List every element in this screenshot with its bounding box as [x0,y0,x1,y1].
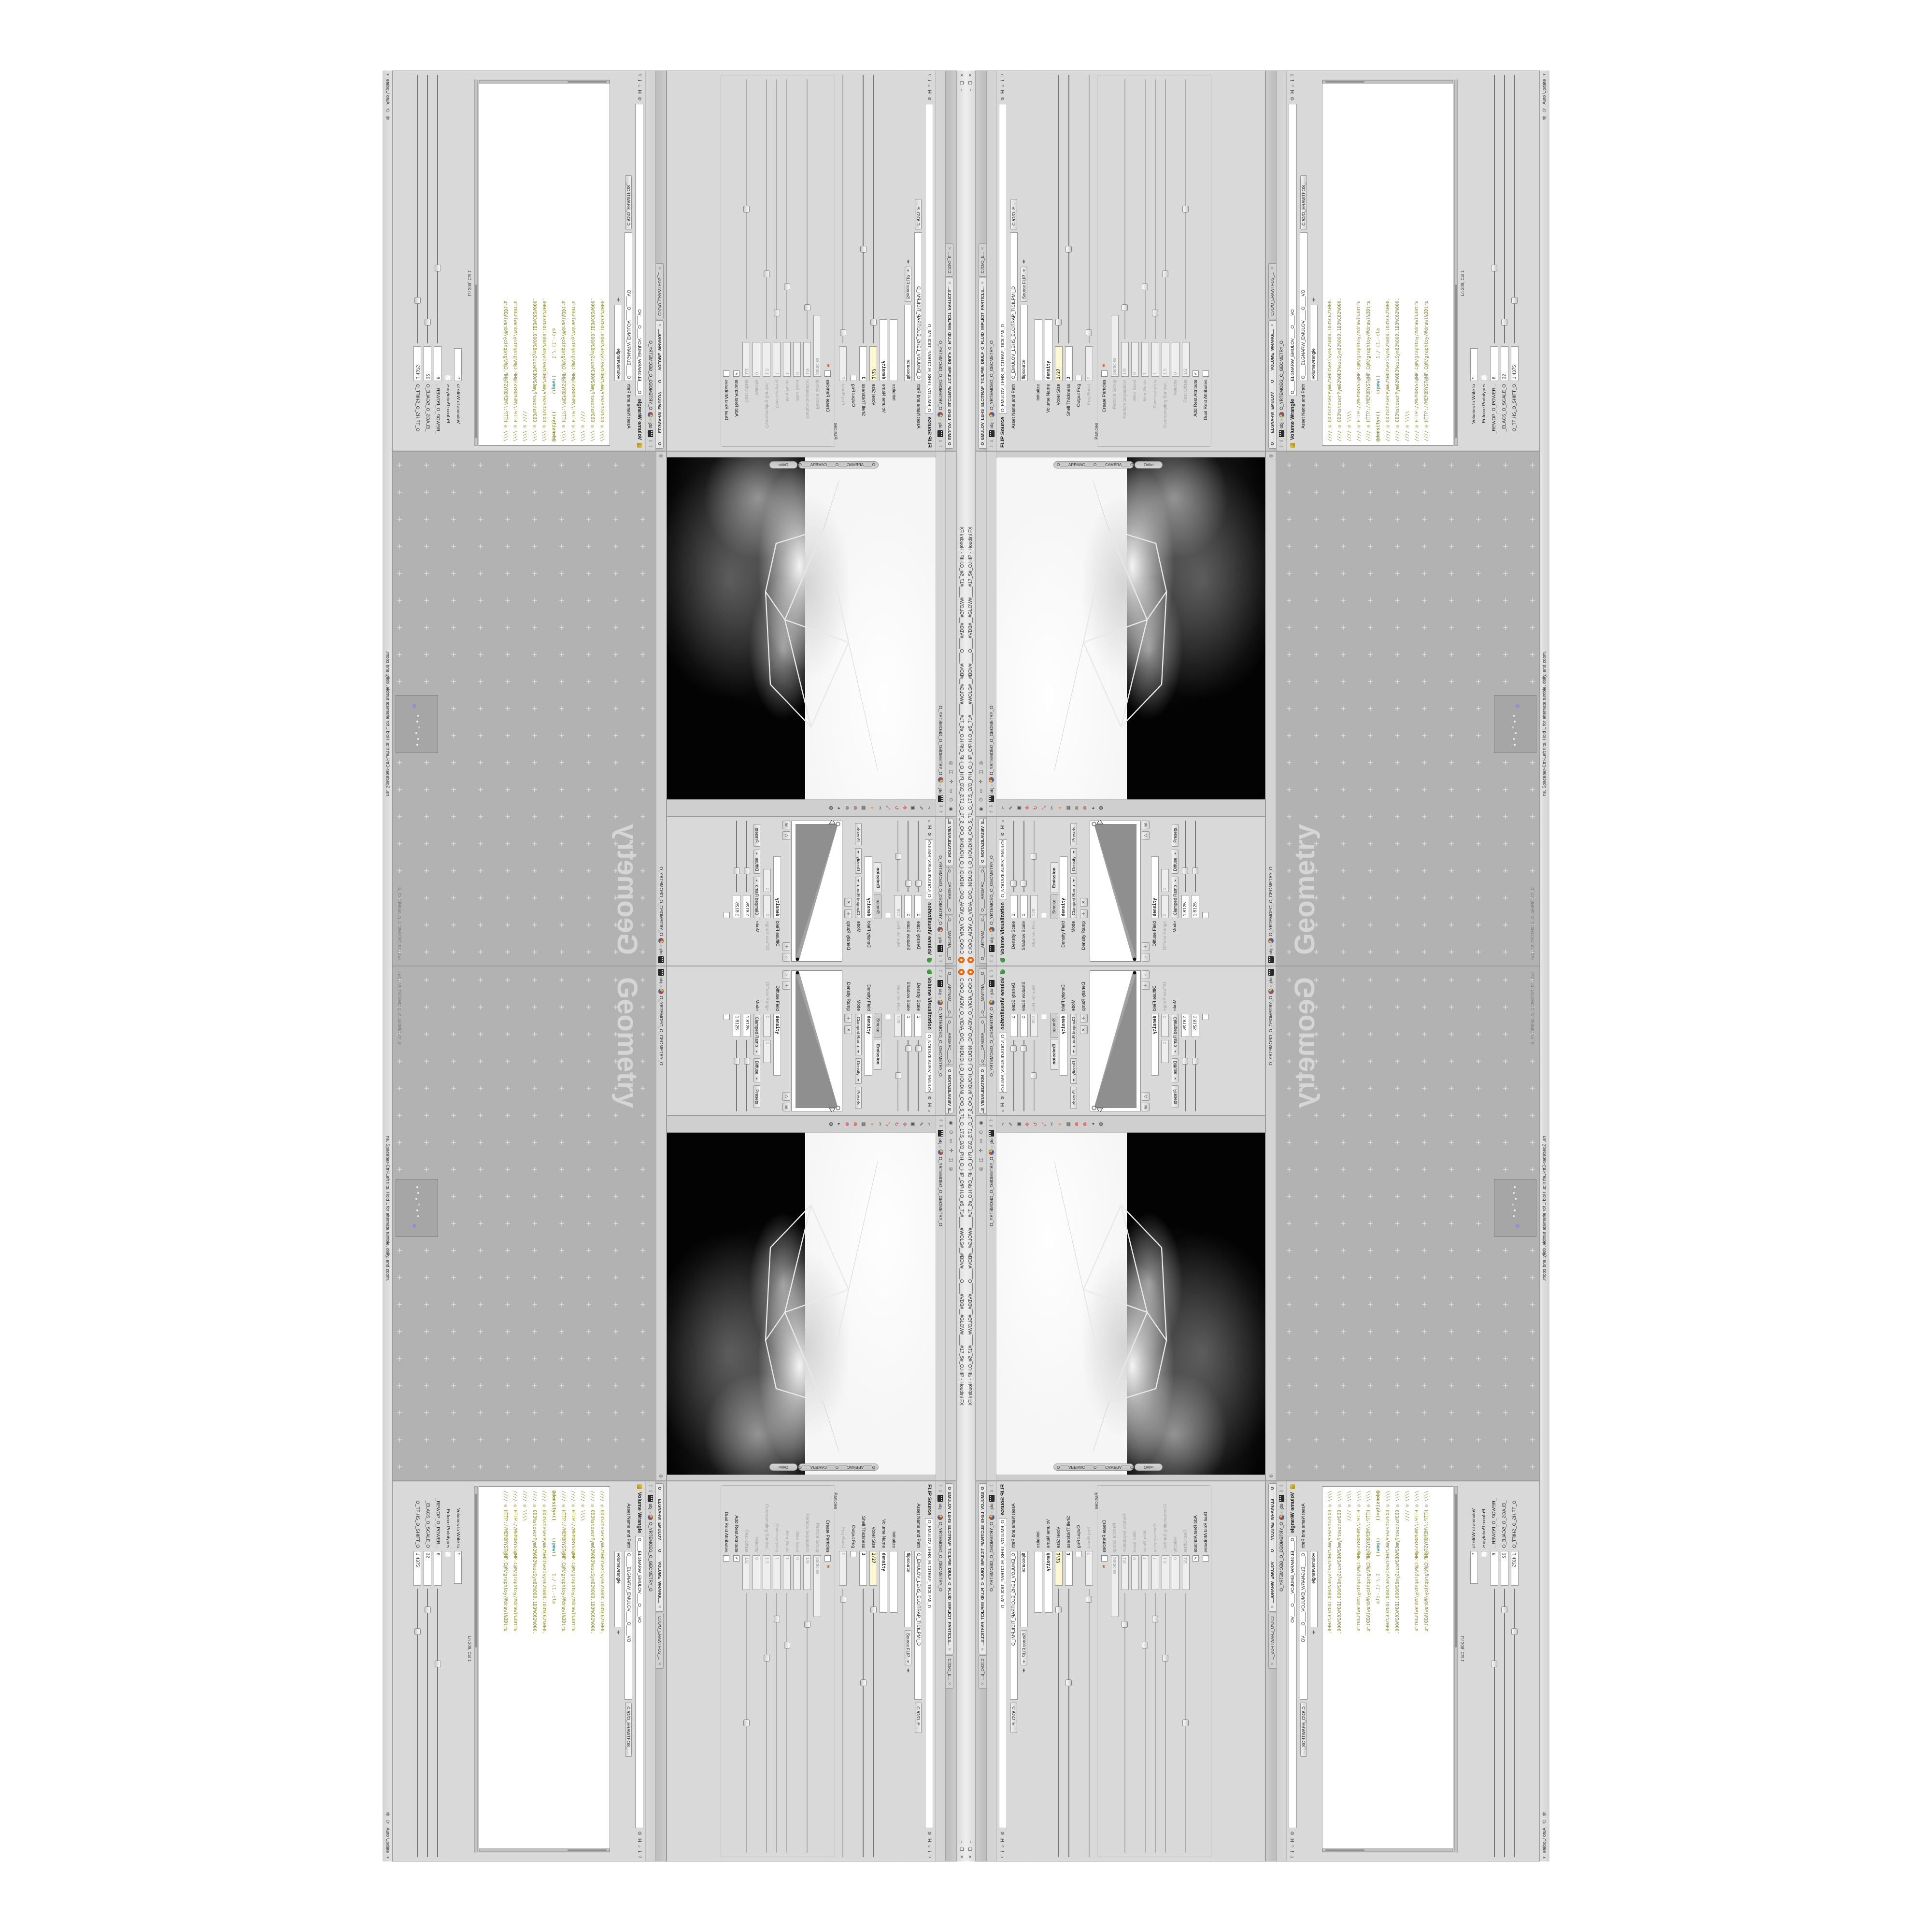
network-canvas[interactable]: Geometry CubeSphereO_EREHPS_EBUC_O_CUBE_… [1276,452,1539,966]
source-flip-dropdown[interactable]: Source FLIP [905,1630,912,1665]
slider-knob[interactable] [1511,1628,1518,1635]
ramp-interp-icon[interactable]: △ [1142,831,1150,840]
param-field[interactable]: 0 [764,1014,771,1037]
param-field[interactable]: 0 [794,342,801,377]
viewport-tool-icon[interactable]: ▦ [861,804,866,812]
viewport-tool-icon[interactable]: ✎ [1009,1121,1014,1128]
spinner-icon[interactable]: ◂▸ [1311,1630,1316,1634]
nav-forward-icon[interactable]: ⇩ [938,1124,943,1128]
vex-code-editor[interactable]: //// ◎ 0D3%steserPym62%0D3%eziSym62%000.… [1322,80,1453,446]
maximize-button[interactable]: ❐ [959,1847,964,1851]
slider-knob[interactable] [1031,853,1037,860]
pane-tab[interactable]: C:/O/O_ERAWTFOS_... ✕ [656,1613,664,1669]
param-checkbox[interactable] [850,375,856,381]
mode-dropdown[interactable]: Clamped Ramp [855,877,862,918]
asset-name-field[interactable]: O_EMULOV_LEHS_ELCITRAP_TICILPMI_D [1010,232,1018,381]
gear-icon[interactable]: ⚙ [637,1831,642,1835]
help-icon[interactable]: ? [927,1855,932,1858]
param-field[interactable]: 1 [1141,342,1149,377]
slider-knob[interactable] [734,1058,740,1065]
param-checkbox[interactable] [723,370,729,377]
path-root[interactable]: obj [1279,1504,1284,1509]
node-name-field[interactable]: flipsource [1020,305,1028,381]
viewport-tool-icon[interactable]: ❂ [828,1121,833,1128]
viewport-tool-icon[interactable]: ❂ [1099,804,1104,812]
pane-tab[interactable]: C:/O/O_ERAWTFOS_... ✕ [656,263,664,319]
param-slider[interactable] [1491,1589,1497,1857]
ramp-add-button[interactable]: ✛ [1080,1014,1088,1023]
gear-icon[interactable]: ⚙ [1000,1095,1006,1100]
search-icon[interactable]: ⌕ [1290,1845,1295,1848]
mode-dropdown[interactable]: Clamped Ramp [1070,877,1077,918]
ramp-add-button[interactable]: ✛ [1080,909,1088,918]
param-field[interactable]: 1.5 [1162,342,1169,377]
nav-back-icon[interactable]: ⇧ [938,810,943,813]
param-checkbox[interactable] [1202,1014,1208,1020]
presets2-button[interactable]: Presets [1172,824,1179,847]
param-field[interactable]: 128 [1030,895,1038,918]
tab-close-icon[interactable]: ✕ [947,1648,952,1651]
param-slider[interactable] [1142,79,1148,339]
pane-tab[interactable]: O____AREMAC____O... ✕ [979,867,986,915]
asset-path-button[interactable]: C:/O/O_E... [915,199,922,229]
ramp-source-dropdown[interactable]: Density [1070,848,1077,874]
path-root[interactable]: obj [938,1138,943,1144]
path-root[interactable]: obj [989,788,994,794]
slider-knob[interactable] [784,284,790,290]
viewport-render[interactable]: O____AREMAC____O____CAMERA____O Ortho [667,456,936,799]
path-root[interactable]: obj [1279,423,1284,428]
asset-path-button[interactable]: C:/O/O_ERAWTFOS_... [1300,1703,1307,1757]
param-slider[interactable] [734,1040,740,1111]
param-checkbox[interactable] [1076,375,1082,381]
pane-tab[interactable]: O____ELGNARW_EMULOV____O____VOLUME_WRANG… [1268,1483,1276,1612]
tab-close-icon[interactable]: ✕ [980,1648,985,1651]
source-flip-dropdown[interactable]: Source FLIP [905,267,912,302]
param-field[interactable]: 1/27 [870,346,878,381]
maximize-button[interactable]: ❐ [968,1847,973,1851]
search-icon[interactable]: ⌕ [1290,84,1295,87]
viewport-tool-icon[interactable]: ✎ [918,804,923,812]
viewport-tool-icon[interactable]: ✂ [877,804,882,812]
info-icon[interactable]: ℹ [927,1851,932,1853]
param-field[interactable]: 1.8125 [743,1014,751,1037]
path-geo[interactable]: O_YRTEMOEG_O_GEOMETRY_O [1279,341,1284,410]
slider-knob[interactable] [1152,1616,1158,1622]
viewport-tool-icon[interactable]: ⋒ [852,804,858,812]
gear-icon[interactable]: ⚙ [1290,1831,1295,1835]
nav-forward-icon[interactable]: ⇩ [1279,1490,1284,1493]
search-icon[interactable]: ⌕ [637,84,642,87]
path-geo[interactable]: O_YRTEMOEG_O_GEOMETRY_O [938,341,943,410]
tab-emission[interactable]: Emission [874,862,882,893]
nav-forward-icon[interactable]: ⇩ [989,439,994,443]
param-field[interactable]: 0 [839,346,847,381]
param-slider[interactable] [840,75,846,343]
ramp-zoom-icon[interactable]: ⌕ [782,970,790,979]
viewport-tool-icon[interactable]: ✎ [1009,804,1014,812]
param-checkbox[interactable] [1202,912,1208,918]
param-field[interactable]: 128 [1030,1014,1038,1037]
asset-path-button[interactable]: C:/O/O_E... [1010,199,1017,229]
param-field[interactable]: 1/2 [1182,1555,1190,1590]
ramp-source-dropdown[interactable]: Density [855,1058,862,1084]
param-slider[interactable] [1192,821,1198,892]
pane-tab[interactable]: O_EMULOV_LEHS_ELCITRAP_TICILPMI_DIULF_O_… [946,1483,953,1654]
asset-name-field[interactable]: O_EMULOV_LEHS_ELCITRAP_TICILPMI_D [1010,1551,1018,1700]
close-button[interactable]: ✕ [959,1855,964,1859]
param-checkbox[interactable] [1076,1551,1082,1557]
slider-knob[interactable] [1182,1058,1188,1065]
param-slider[interactable] [840,1589,846,1857]
pane-tab[interactable]: C:/O/O_ERAWTFOS_... ✕ [1268,263,1276,319]
param-field[interactable] [890,319,898,381]
render-flag-icon[interactable]: ⚑ [825,364,830,368]
gear-icon[interactable]: ⚙ [637,97,642,101]
pane-tab[interactable]: O_EMULOV_LEHS_ELCITRAP_TICILPMI_DIULF_O_… [946,278,953,449]
viewport-stowbar[interactable] [667,1475,936,1480]
viewport-tool-icon[interactable]: ✛ [979,1147,984,1154]
tab-close-icon[interactable]: ✕ [980,281,985,284]
viewport-tool-icon[interactable]: ◫ [948,1156,953,1164]
wrangle-name-field[interactable]: O____ELGNARW_EMULOV____O____VO [636,1536,644,1828]
param-slider[interactable] [764,1593,770,1853]
pane-tab[interactable]: O____ARTNAM____O... ✕ [979,968,986,1016]
network-canvas[interactable]: Geometry CubeSphereO_EREHPS_EBUC_O_CUBE_… [393,966,656,1480]
viewport-stowbar[interactable] [667,452,936,457]
param-field[interactable]: 32 [1501,1551,1508,1586]
param-field[interactable]: 0 [794,1555,801,1590]
help-houdini-icon[interactable]: H [1000,825,1006,829]
param-slider[interactable] [905,1040,911,1111]
slider-knob[interactable] [915,1045,922,1052]
param-field[interactable]: particles [1111,1555,1119,1617]
viz-name-field[interactable]: O_NOITAZILAUSIV_EMULOV_O_VO [925,839,934,899]
param-slider[interactable] [1065,1589,1072,1857]
ramp-zoom-icon[interactable]: ⌕ [782,953,790,962]
gear-icon[interactable]: ⚙ [1000,832,1006,837]
viewport-tool-icon[interactable]: ➢ [1000,804,1006,812]
param-field[interactable]: 3 [1065,1551,1073,1586]
slider-knob[interactable] [1142,1642,1148,1648]
camera-pill[interactable]: O____AREMAC____O____CAMERA____O [798,461,879,469]
maximize-button[interactable]: ❐ [968,81,973,85]
param-field[interactable]: 1 [1141,1555,1149,1590]
slider-knob[interactable] [414,297,421,304]
param-field[interactable]: 1.8125 [1192,1014,1199,1037]
search-icon[interactable]: ⌕ [1000,1845,1006,1848]
node-name-field[interactable]: flipsource [1020,1551,1028,1627]
slider-knob[interactable] [804,1621,810,1628]
slider-knob[interactable] [1065,1679,1072,1686]
viewport-tool-icon[interactable]: ▦ [1066,804,1071,812]
param-checkbox[interactable] [824,1555,831,1562]
render-flag-icon[interactable]: ⚑ [825,1564,830,1568]
nav-back-icon[interactable]: ⇧ [989,1119,994,1122]
close-button[interactable]: ✕ [959,73,964,77]
param-field[interactable] [1035,1551,1042,1613]
slider-knob[interactable] [744,867,750,874]
flip-name-field[interactable]: O_EMULOV_LEHS_ELCITRAP_TICILPMI_D [999,1518,1007,1828]
maximize-button[interactable]: ❐ [959,81,964,85]
slider-knob[interactable] [1162,1655,1168,1662]
viewport-tool-icon[interactable]: ⤡ [1041,804,1047,812]
diffuse-dropdown[interactable]: Diffuse [754,850,761,874]
path-root[interactable]: obj [1268,978,1273,983]
help-houdini-icon[interactable]: H [1000,1838,1006,1842]
presets2-button[interactable]: Presets [754,824,761,847]
param-checkbox[interactable] [850,1551,856,1557]
path-root[interactable]: obj [659,978,664,983]
search-icon[interactable]: ⌕ [927,1109,932,1112]
param-slider[interactable] [870,75,877,343]
param-field[interactable]: 1/9 [804,342,811,377]
network-minimap[interactable] [396,1179,438,1237]
param-field[interactable]: 0 [764,895,771,918]
param-field[interactable]: 1/9 [1121,1555,1129,1590]
param-slider[interactable] [804,1593,810,1853]
ramp-delete-button[interactable]: ✕ [1080,898,1088,907]
viewport-render[interactable]: O____AREMAC____O____CAMERA____O Ortho [996,456,1265,799]
param-field-2[interactable]: 1 [764,869,771,892]
viewport-tool-icon[interactable]: ⋒ [844,804,850,812]
viewport-tool-icon[interactable]: ▸ [836,1121,841,1128]
window-titlebar[interactable]: C:/O/O_AIDIV_O_VIDIA_O/O_INIDUOH_O_HOUDI… [966,966,976,1861]
viewport-tool-icon[interactable]: ✥ [902,1121,907,1128]
param-slider[interactable] [1182,1593,1189,1853]
search-icon[interactable]: ⌕ [927,84,932,87]
viewport-tool-icon[interactable]: ▣ [1017,804,1022,812]
param-slider[interactable] [1010,1040,1017,1111]
gear-icon[interactable]: ⚙ [927,832,932,837]
search-icon[interactable]: ⌕ [637,1845,642,1848]
asset-path-button[interactable]: C:/O/O_E... [1010,1703,1017,1733]
slider-knob[interactable] [870,319,877,326]
viewport-tool-icon[interactable]: ◉ [948,1119,953,1127]
viewport-tool-icon[interactable]: ▸ [1091,1121,1096,1128]
ramp-source-dropdown[interactable]: Density [1070,1058,1077,1084]
param-slider[interactable] [774,1593,780,1853]
pane-tab[interactable]: O____AREMAC____O... ✕ [946,1017,953,1065]
param-field[interactable]: 1/27 [1055,1551,1063,1586]
param-field[interactable]: 3 [860,1551,867,1586]
param-slider[interactable] [1152,1593,1158,1853]
ramp-add2-icon[interactable]: ✛ [1142,981,1150,990]
param-field[interactable]: 1.5 [763,342,771,377]
camera-pill[interactable]: O____AREMAC____O____CAMERA____O [1053,461,1134,469]
diffuse-dropdown[interactable]: Diffuse [754,1058,761,1083]
viewport-render[interactable]: O____AREMAC____O____CAMERA____O Ortho [996,1133,1265,1476]
param-field[interactable] [890,1551,898,1613]
ramp-grid-icon[interactable]: ⊞ [782,1103,790,1111]
param-slider[interactable] [1182,79,1189,339]
viewport-tool-icon[interactable]: ✳ [869,1121,874,1128]
viewport-tool-icon[interactable]: ⋒ [1074,804,1080,812]
param-checkbox[interactable]: ✓ [733,370,739,377]
spinner-icon[interactable]: ◂▸ [1021,1668,1026,1673]
tab-smoke[interactable]: Smoke [1050,1013,1058,1038]
tab-close-icon[interactable]: ✕ [980,247,985,250]
search-icon[interactable]: ⌕ [1000,84,1006,87]
code-vscrollbar[interactable] [1322,80,1453,84]
asset-name-field[interactable]: O_EMULOV_LEHS_ELCITRAP_TICILPMI_D [915,232,923,381]
nav-back-icon[interactable]: ⇧ [1279,1484,1284,1488]
viz-name-field[interactable]: O_NOITAZILAUSIV_EMULOV_O_VO [999,1033,1007,1093]
path-root[interactable]: obj [989,1138,994,1144]
pane-tab[interactable]: O____ELGNARW_EMULOV____O____VOLUME_WRANG… [656,320,664,449]
param-slider[interactable] [774,79,780,339]
pane-tab[interactable]: O____AREMAC____O... ✕ [946,867,953,915]
code-vscrollbar[interactable] [479,80,610,84]
viewport-tool-icon[interactable]: ⤡ [885,1121,891,1128]
slider-knob[interactable] [1010,1045,1017,1052]
nav-back-icon[interactable]: ⇧ [989,1484,994,1488]
slider-knob[interactable] [1021,1045,1027,1052]
help-icon[interactable]: ? [927,74,932,77]
path-root[interactable]: obj [989,938,994,943]
param-field[interactable]: particles [814,315,822,377]
param-field[interactable]: 1.5 [763,1555,771,1590]
flip-name-field[interactable]: O_EMULOV_LEHS_ELCITRAP_TICILPMI_D [999,104,1007,414]
param-slider[interactable] [1086,75,1092,343]
path-geo[interactable]: O_YRTEMOEG_O_GEOMETRY_O [648,341,653,410]
param-field[interactable]: 0 [1131,1555,1139,1590]
path-geo[interactable]: O_YRTEMOEG_O_GEOMETRY_O [1268,996,1273,1065]
viewport-tool-icon[interactable]: ◎ [948,1165,953,1173]
nav-back-icon[interactable]: ⇧ [938,959,943,963]
help-houdini-icon[interactable]: H [926,1838,932,1842]
info-icon[interactable]: ℹ [1290,1851,1295,1853]
slider-knob[interactable] [774,310,780,316]
slider-knob[interactable] [1055,1606,1062,1613]
ramp-grid-icon[interactable]: ⊞ [782,821,790,829]
node-name-field[interactable]: volumewrangle [1310,305,1318,381]
slider-knob[interactable] [804,304,810,311]
param-slider[interactable] [1162,79,1168,339]
viewport-tool-icon[interactable]: ▣ [1017,1121,1022,1128]
param-field[interactable]: particles [1111,315,1119,377]
viz-name-field[interactable]: O_NOITAZILAUSIV_EMULOV_O_VO [925,1033,934,1093]
nav-forward-icon[interactable]: ⇩ [938,975,943,979]
ramp-add2-icon[interactable]: ✛ [782,981,790,990]
param-checkbox[interactable] [1481,1551,1487,1557]
viewport-tool-icon[interactable]: ✳ [869,804,874,812]
param-field[interactable]: 0 [1161,895,1169,918]
asset-name-field[interactable]: O____ELGNARW_EMULOV____O____VO [625,232,633,381]
param-slider[interactable] [743,79,750,339]
slider-knob[interactable] [840,329,846,336]
nav-back-icon[interactable]: ⇧ [989,444,994,448]
auto-update-selector[interactable]: Auto Update [1542,1828,1547,1853]
path-geo[interactable]: O_YRTEMOEG_O_GEOMETRY_O [989,1522,994,1591]
param-checkbox[interactable] [885,912,891,918]
spinner-icon[interactable]: ◂▸ [1021,259,1026,264]
gear-icon[interactable]: ⚙ [927,1831,932,1835]
slider-knob[interactable] [744,1058,750,1065]
help-houdini-icon[interactable]: H [1000,1103,1006,1107]
param-slider[interactable] [1491,75,1497,343]
path-root[interactable]: obj [648,1504,653,1509]
slider-knob[interactable] [1192,867,1198,874]
param-field[interactable]: 1.8125 [733,1014,741,1037]
param-field[interactable]: 1 [905,1014,912,1037]
slider-knob[interactable] [1192,1058,1198,1065]
path-geo[interactable]: O_YRTEMOEG_O_GEOMETRY_O [1279,1522,1284,1591]
asset-name-field[interactable]: O_EMULOV_LEHS_ELCITRAP_TICILPMI_D [915,1551,923,1700]
viewport-tool-icon[interactable]: ⋒ [1082,804,1088,812]
mode2-dropdown[interactable]: Clamped Ramp [754,877,761,918]
viewport-tool-icon[interactable]: ✎ [918,1121,923,1128]
flip-name-field[interactable]: O_EMULOV_LEHS_ELCITRAP_TICILPMI_D [925,1518,934,1828]
param-slider[interactable] [1501,75,1507,343]
slider-knob[interactable] [435,1661,441,1667]
param-field[interactable]: 1/2 [743,342,751,377]
param-field[interactable]: 32 [424,1551,432,1586]
nav-back-icon[interactable]: ⇧ [989,810,994,813]
param-slider[interactable] [1010,821,1017,892]
presets-button[interactable]: Presets [855,823,862,846]
param-slider[interactable] [1122,1593,1128,1853]
asset-name-field[interactable]: O____ELGNARW_EMULOV____O____VO [1300,232,1307,381]
nav-forward-icon[interactable]: ⇩ [648,1490,653,1493]
viewport-tool-icon[interactable]: ◫ [979,1156,984,1164]
slider-knob[interactable] [905,880,911,887]
asset-path-button[interactable]: C:/O/O_ERAWTFOS_... [625,1703,632,1757]
viewport-tool-icon[interactable]: ▸ [1091,804,1096,812]
path-root[interactable]: obj [938,938,943,943]
param-field[interactable]: 6 [434,1551,442,1586]
viz-name-field[interactable]: O_NOITAZILAUSIV_EMULOV_O_VO [999,839,1007,899]
param-field[interactable]: 0 [1172,342,1179,377]
slider-knob[interactable] [1182,206,1189,213]
slider-knob[interactable] [1162,271,1168,278]
param-field[interactable] [1035,319,1042,381]
slider-knob[interactable] [1021,880,1027,887]
wrangle-name-field[interactable]: O____ELGNARW_EMULOV____O____VO [1289,104,1297,396]
param-checkbox[interactable] [1041,1014,1047,1020]
nav-back-icon[interactable]: ⇧ [989,969,994,973]
ramp-zoom-icon[interactable]: ⌕ [1142,953,1150,962]
ramp-delete-button[interactable]: ✕ [845,898,852,907]
param-checkbox[interactable] [445,375,451,381]
close-button[interactable]: ✕ [968,73,973,77]
param-slider[interactable] [860,75,867,343]
param-field[interactable]: 1/2 [743,1555,751,1590]
pane-tab[interactable]: O____ELGNARW_EMULOV____O____VOLUME_WRANG… [656,1483,664,1612]
param-slider[interactable] [1511,1589,1518,1857]
path-geo[interactable]: O_YRTEMOEG_O_GEOMETRY_O [659,867,664,936]
slider-knob[interactable] [1122,1621,1128,1628]
param-slider[interactable] [414,1589,421,1857]
viewport-tool-icon[interactable]: ▣ [910,1121,915,1128]
param-slider[interactable] [860,1589,867,1857]
slider-knob[interactable] [764,1655,770,1662]
minimize-button[interactable]: – [968,1841,973,1843]
viewport-tool-icon[interactable]: ▭ [948,1137,953,1145]
viewport-tool-icon[interactable]: ◎ [979,1165,984,1173]
param-field[interactable]: 128 [895,1014,902,1037]
ortho-pill[interactable]: Ortho [1135,461,1163,469]
help-houdini-icon[interactable]: H [926,90,932,94]
tab-smoke[interactable]: Smoke [874,894,882,919]
render-flag-icon[interactable]: ⚑ [1102,1564,1107,1568]
pane-tab[interactable]: O____ARTNAM____O... ✕ [979,916,986,964]
param-field[interactable]: * [455,1551,462,1584]
param-checkbox[interactable]: ✓ [1193,1555,1199,1562]
info-icon[interactable]: ℹ [927,80,932,82]
param-field[interactable]: 0 [753,1555,761,1590]
param-slider[interactable] [425,75,431,343]
